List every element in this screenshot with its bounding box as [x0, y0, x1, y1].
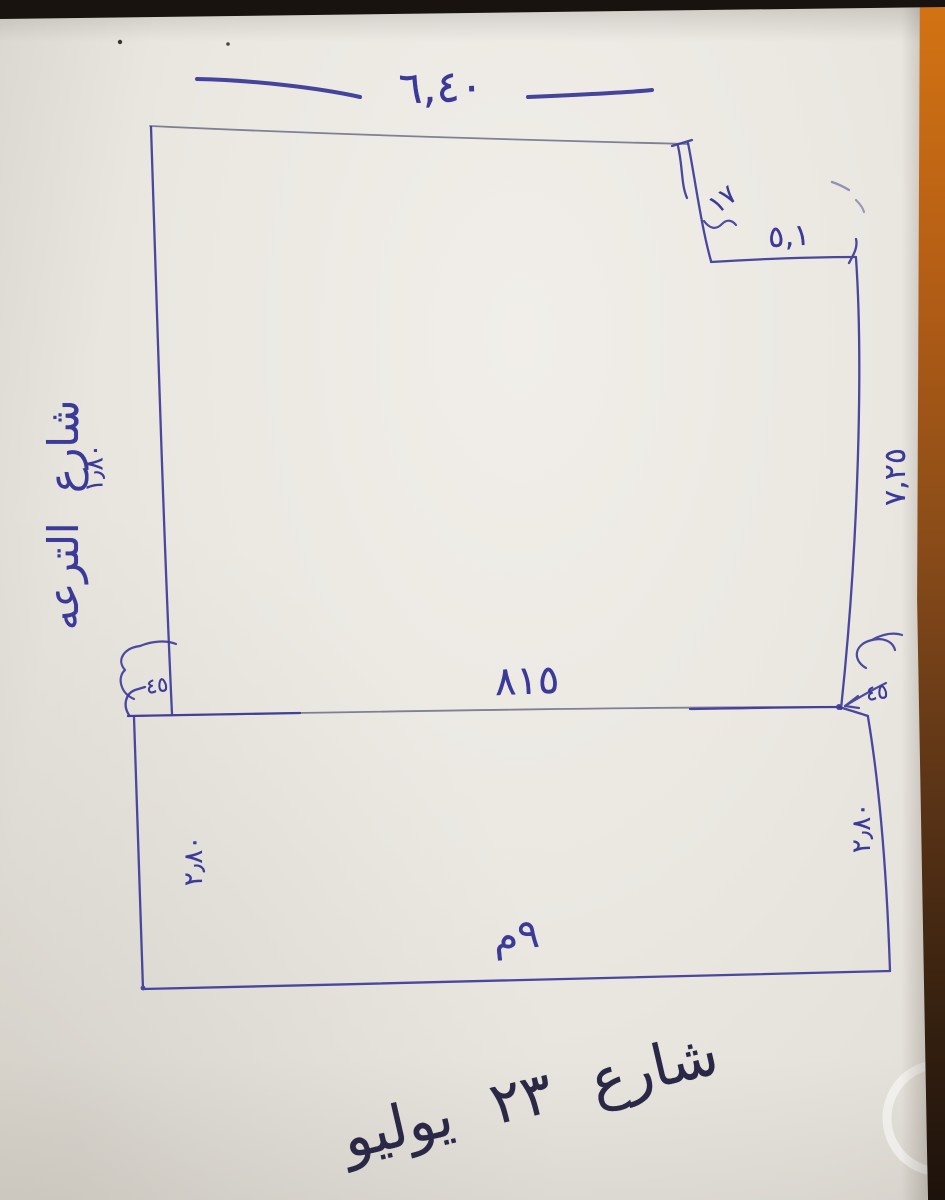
dim-strip-bottom: ٩م	[491, 914, 541, 959]
dim-top-width: ٦,٤٠	[398, 65, 484, 112]
plot-sketch-photo: ٦,٤٠ ١٧ ٥,١ ٧,٢٥ ٨١٥ ١٫٨٠ شارع الترعه ٤٥…	[0, 0, 945, 1200]
sketch-ink-svg	[0, 0, 945, 1200]
corner-offset-right: ٤٥	[864, 681, 889, 705]
stray-ink-marks	[118, 40, 864, 212]
corner-offset-left: ٤٥	[144, 674, 169, 698]
dim-middle-width: ٨١٥	[494, 660, 560, 702]
notch-depth-squiggle	[704, 221, 736, 228]
dim-strip-left: ٢٫٨٠	[181, 836, 207, 886]
plot-outline	[128, 127, 859, 716]
left-street-name: شارع الترعه	[43, 400, 85, 631]
dim-strip-right: ٢٫٨٠	[849, 803, 875, 853]
dim-right-side: ٧,٢٥	[881, 448, 911, 506]
dim-notch-width: ٥,١	[767, 221, 811, 254]
upper-plot-outline	[128, 126, 839, 716]
corner-bracket-right	[857, 634, 902, 668]
